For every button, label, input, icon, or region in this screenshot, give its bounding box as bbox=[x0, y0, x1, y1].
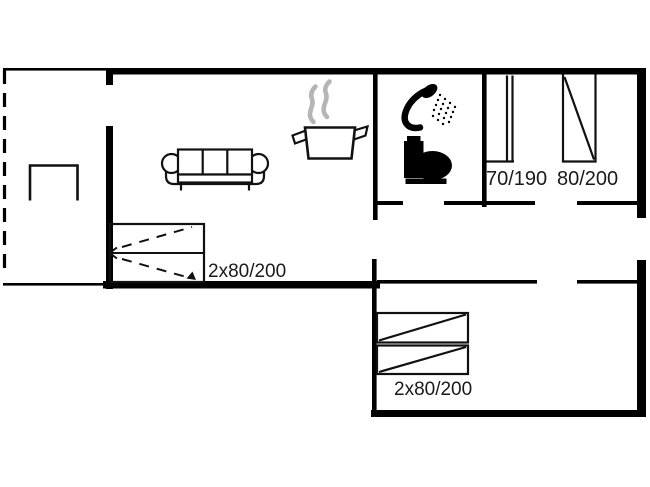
wall-bedroom-south-right bbox=[577, 201, 640, 205]
shower-spray bbox=[432, 94, 456, 125]
table-icon bbox=[30, 166, 78, 201]
bed-size-label-80x200: 80/200 bbox=[557, 168, 618, 190]
floor-plan-drawing bbox=[0, 0, 650, 487]
sofa-bed-2x80x200-icon bbox=[110, 224, 205, 282]
wall-kitchen-bathroom bbox=[373, 74, 378, 220]
wall-top bbox=[106, 68, 646, 75]
cooking-pot-icon bbox=[293, 127, 368, 159]
wall-bathroom-south-right bbox=[444, 201, 535, 205]
toilet-base bbox=[406, 179, 447, 185]
sofa-backrest bbox=[178, 150, 252, 175]
wall-right-upper bbox=[637, 68, 646, 218]
pot-body bbox=[305, 128, 355, 159]
terrace-top-edge bbox=[3, 68, 107, 71]
bed-size-label-2x80x200-living: 2x80/200 bbox=[208, 262, 286, 283]
bed-80x200-icon bbox=[563, 75, 596, 162]
bed-70x190-icon bbox=[487, 76, 515, 163]
bed-size-label-2x80x200-room: 2x80/200 bbox=[394, 380, 472, 401]
terrace-bottom-edge bbox=[3, 283, 107, 286]
wall-hall-south-left bbox=[377, 280, 537, 284]
wall-hall-south-right bbox=[577, 280, 640, 284]
wall-left-door-stub bbox=[106, 68, 113, 85]
shower-icon bbox=[405, 81, 457, 128]
walls bbox=[3, 68, 646, 417]
sofa-seat-edge bbox=[178, 175, 252, 183]
toilet-icon bbox=[404, 136, 452, 184]
fold-arrow-right bbox=[187, 272, 197, 281]
pot-left-handle bbox=[293, 131, 307, 144]
double-bed-2x80x200-icon bbox=[377, 313, 468, 374]
wall-bathroom-south-left bbox=[376, 201, 403, 205]
steam-icon bbox=[310, 82, 330, 123]
floor-plan: 70/190 80/200 2x80/200 2x80/200 bbox=[0, 0, 650, 487]
bed-size-label-70x190: 70/190 bbox=[486, 168, 547, 190]
sofa-icon bbox=[162, 150, 268, 191]
wall-bottom-room-south bbox=[371, 410, 646, 417]
toilet-bowl bbox=[413, 151, 452, 180]
